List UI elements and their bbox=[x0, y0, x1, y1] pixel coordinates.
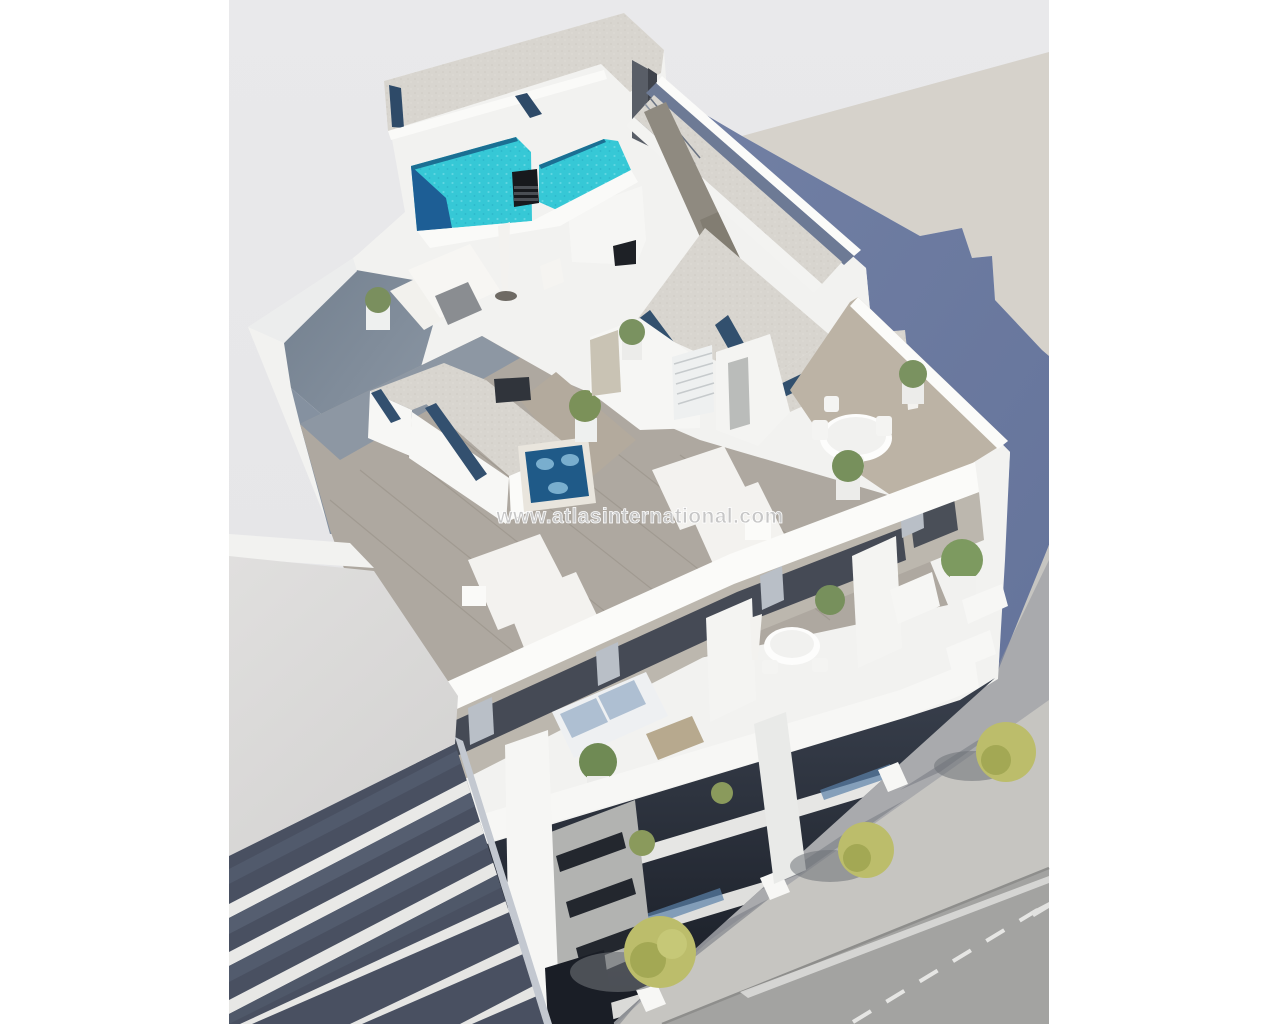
svg-text:www.atlasinternational.com: www.atlasinternational.com bbox=[495, 505, 783, 528]
